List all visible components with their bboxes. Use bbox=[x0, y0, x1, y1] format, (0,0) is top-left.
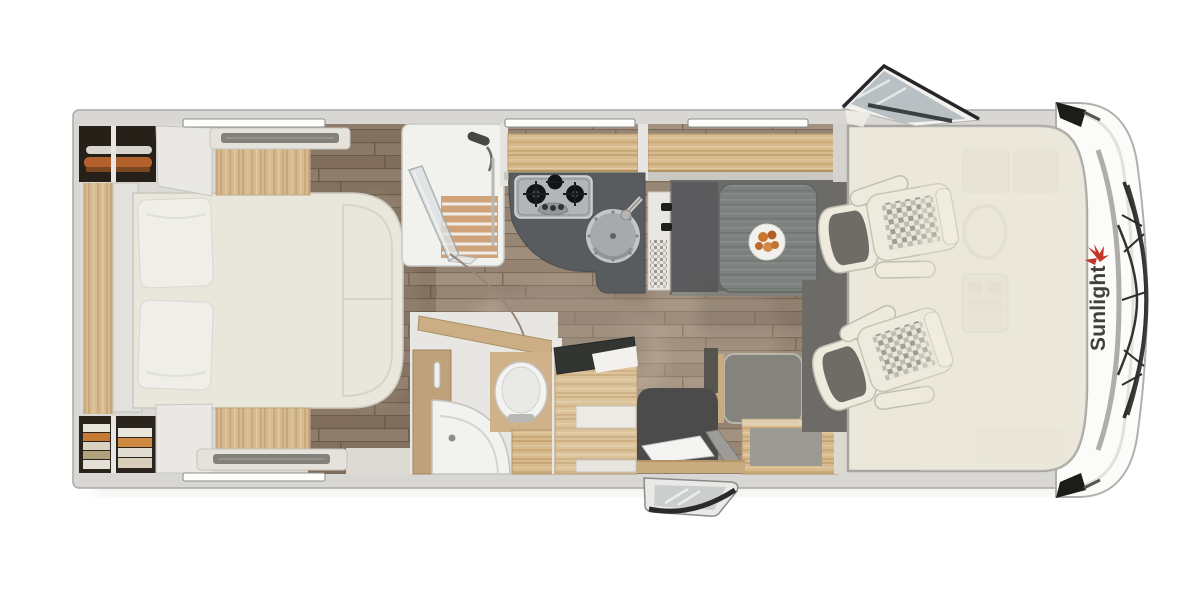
svg-text:Sunlight: Sunlight bbox=[1087, 265, 1110, 351]
